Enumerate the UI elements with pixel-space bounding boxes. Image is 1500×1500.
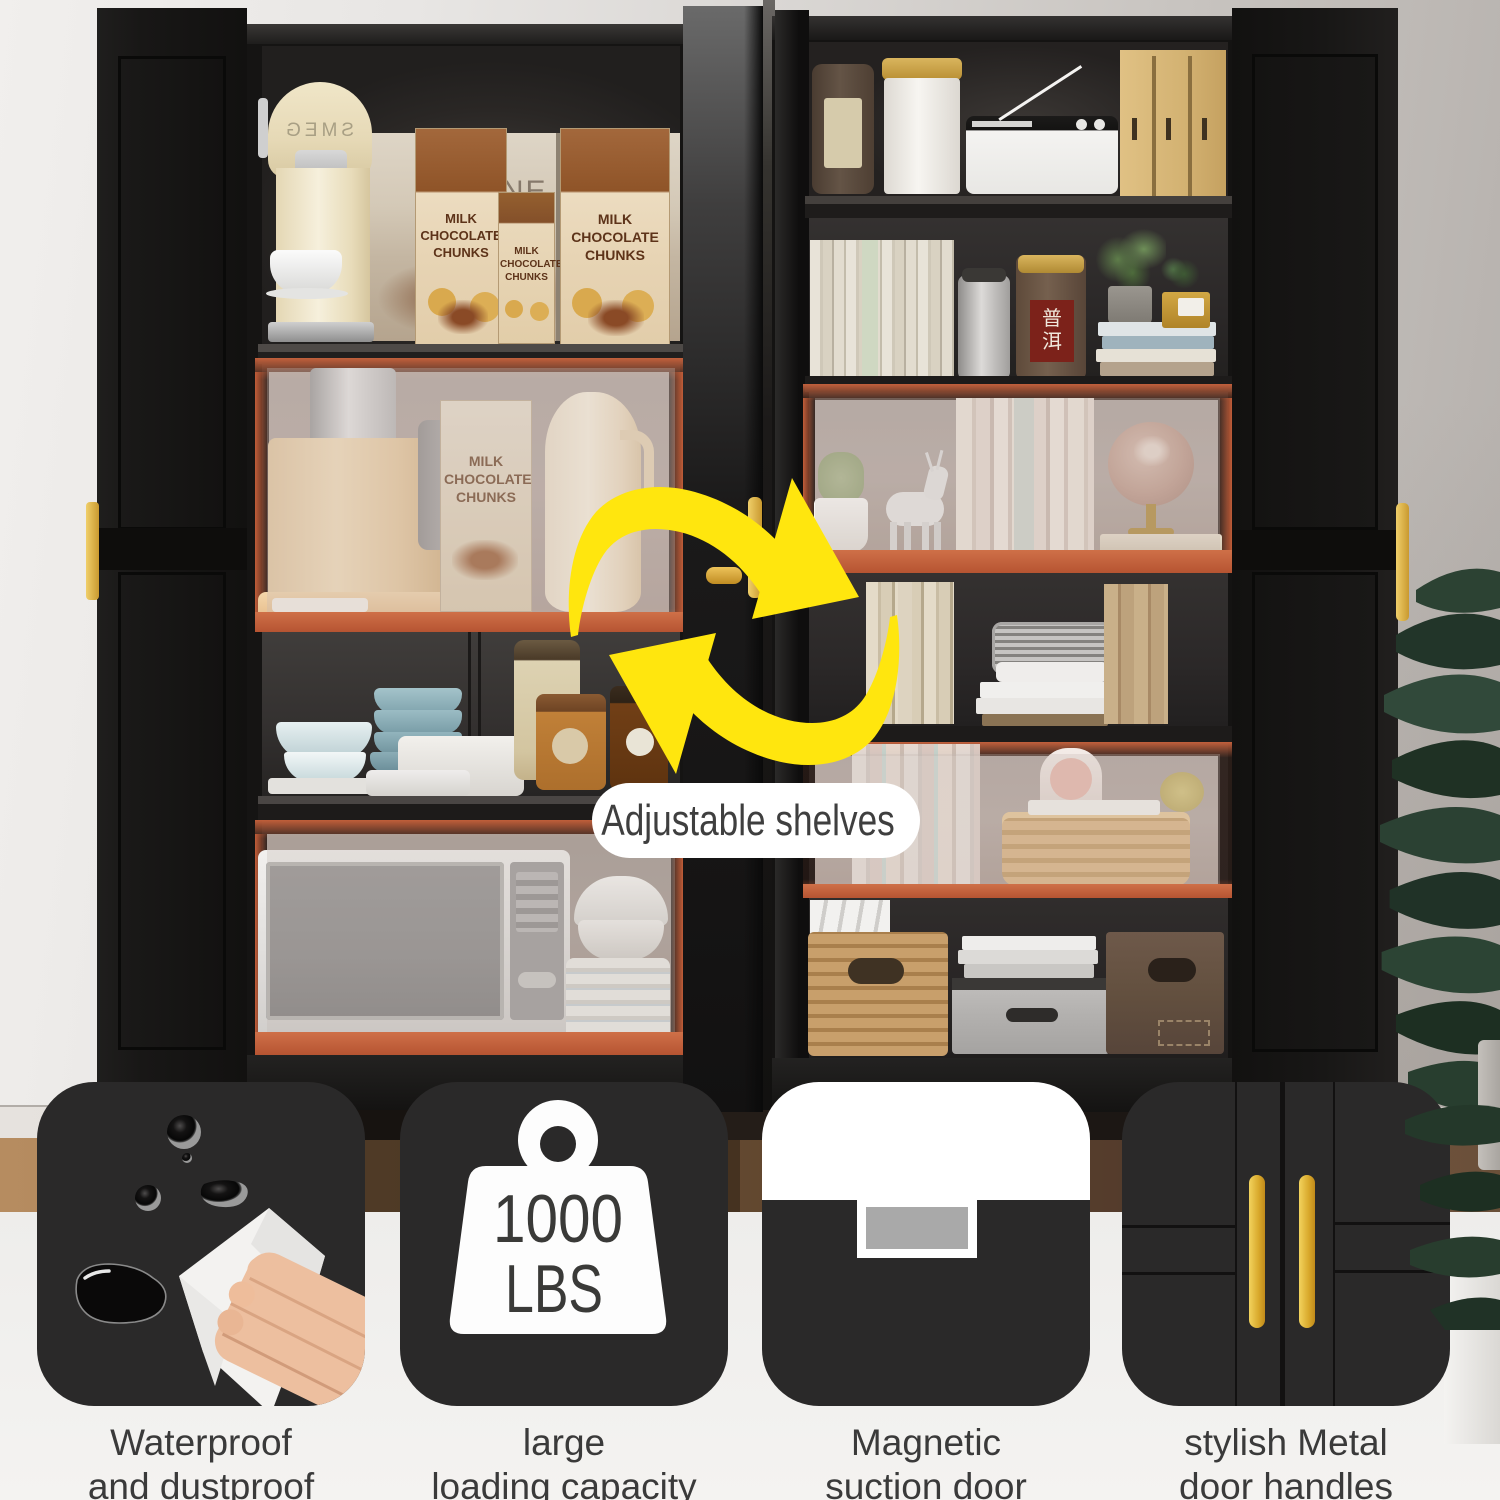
svg-text:1000: 1000: [493, 1181, 623, 1257]
svg-text:LBS: LBS: [505, 1251, 603, 1327]
